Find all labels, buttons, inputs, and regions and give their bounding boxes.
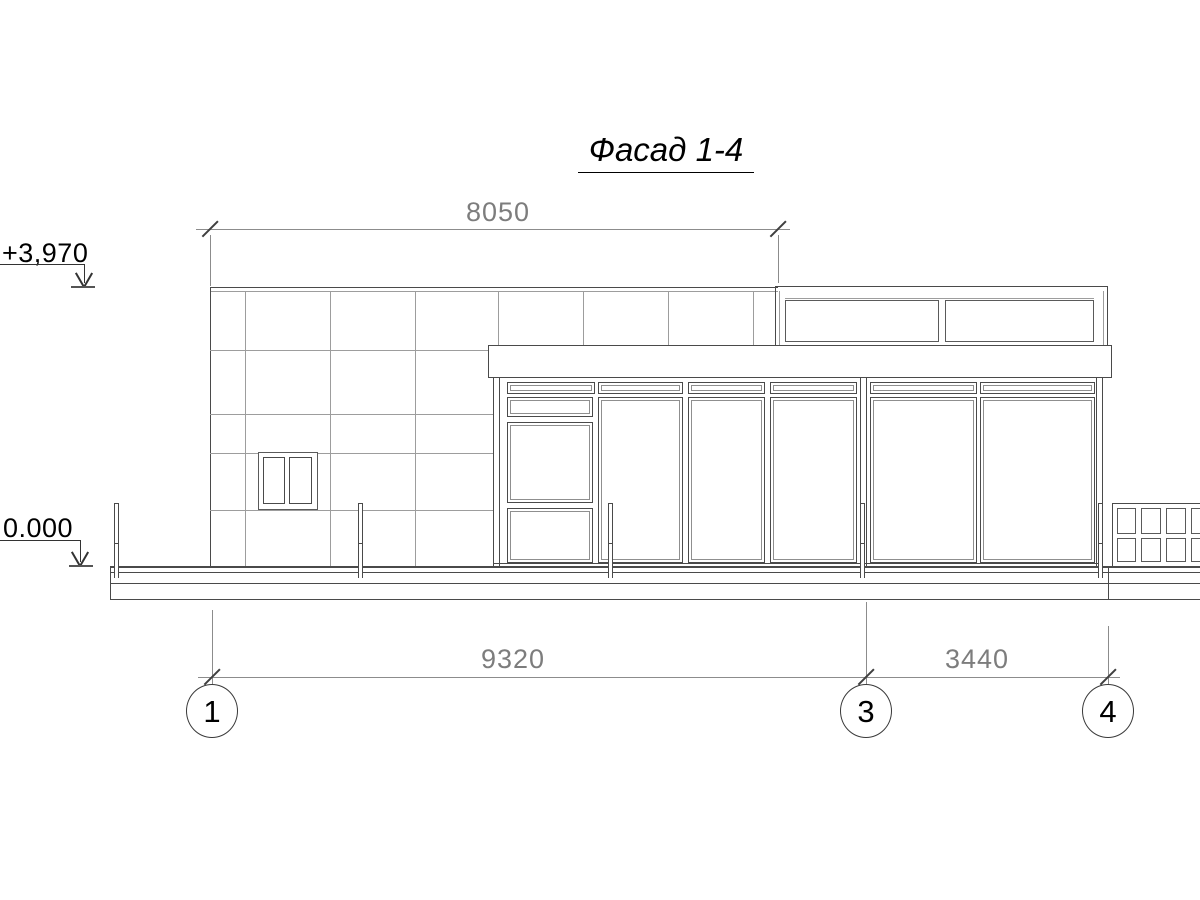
dimension-label-9320: 9320 (438, 644, 588, 675)
parapet-glass-panel (785, 300, 939, 342)
door-transom (507, 397, 593, 417)
glazing-glass (773, 400, 854, 560)
fence-grid (1112, 503, 1200, 566)
extension-line (778, 235, 779, 283)
slab-line (110, 572, 1200, 573)
post-joint (114, 543, 119, 544)
glazing-bay (980, 397, 1095, 563)
drawing-title: Фасад 1-4 (578, 131, 754, 173)
transom-pane (507, 382, 595, 394)
wall-left-edge (210, 287, 211, 566)
glazing-glass (873, 400, 974, 560)
railing-post (608, 503, 613, 578)
door-upper-panel (507, 422, 593, 503)
transom-glass (773, 385, 854, 391)
parapet-right-inner (1103, 291, 1104, 345)
storefront-left-jamb (493, 378, 500, 566)
fence-pane (1141, 508, 1161, 534)
transom-glass (691, 385, 762, 391)
window-sash (263, 457, 285, 504)
door-upper-glass (510, 425, 590, 500)
panel-joint-v (583, 291, 584, 345)
facade-drawing: Фасад 1-4 (0, 0, 1200, 900)
panel-joint-v (668, 291, 669, 345)
parapet-glass-panel (945, 300, 1094, 342)
panel-joint-h (210, 453, 493, 454)
transom-pane (980, 382, 1095, 394)
post-joint (608, 543, 613, 544)
glazing-bay (770, 397, 857, 563)
door-transom-glass (510, 400, 590, 414)
transom-glass (510, 385, 592, 391)
fence-pane (1191, 538, 1200, 562)
level-tick (71, 286, 95, 288)
axis-bubble-1: 1 (186, 684, 238, 738)
door-lower-glass (510, 511, 590, 560)
glazing-bay (870, 397, 977, 563)
fence-pane (1166, 508, 1186, 534)
panel-joint-v (498, 291, 499, 345)
glazing-glass (983, 400, 1092, 560)
elevation-leader-line (0, 264, 85, 265)
fence-pane (1191, 508, 1200, 534)
glazing-bay (688, 397, 765, 563)
elevation-arrow-shaft (80, 540, 81, 562)
fence-pane (1117, 538, 1136, 562)
railing-post (358, 503, 363, 578)
transom-glass (983, 385, 1092, 391)
panel-joint-v (415, 291, 416, 566)
elevation-leader-line (0, 540, 81, 541)
parapet-top-line (775, 286, 1108, 287)
parapet-rail-line (785, 298, 1094, 299)
parapet-right-edge (1107, 286, 1108, 345)
door-lower-panel (507, 508, 593, 563)
panel-joint-v (753, 291, 754, 345)
dimension-line-bottom (198, 677, 1120, 678)
wall-top-line (210, 287, 778, 288)
axis-bubble-3: 3 (840, 684, 892, 738)
transom-pane (870, 382, 977, 394)
panel-joint-h (210, 350, 488, 351)
slab-step-edge (1108, 566, 1109, 600)
transom-glass (873, 385, 974, 391)
railing-post (860, 503, 865, 578)
level-tick (69, 565, 93, 567)
dimension-label-3440: 3440 (902, 644, 1052, 675)
fence-pane (1117, 508, 1136, 534)
transom-glass (601, 385, 680, 391)
parapet-left-edge (775, 286, 776, 345)
transom-pane (598, 382, 683, 394)
fence-pane (1166, 538, 1186, 562)
axis-extension-line (866, 602, 867, 684)
window-frame (258, 452, 318, 510)
elevation-arrow-shaft (84, 264, 85, 283)
post-joint (1098, 543, 1103, 544)
panel-joint-h (210, 414, 493, 415)
post-joint (358, 543, 363, 544)
slab-top-line (110, 566, 1200, 568)
transom-pane (770, 382, 857, 394)
extension-line (210, 235, 211, 286)
storefront-sill-line (493, 563, 1103, 564)
panel-joint-v (330, 291, 331, 566)
dimension-label-top: 8050 (423, 197, 573, 228)
post-joint (860, 543, 865, 544)
railing-post (1098, 503, 1103, 578)
slab-left-edge (110, 566, 111, 600)
axis-bubble-4: 4 (1082, 684, 1134, 738)
window-sash (289, 457, 312, 504)
glazing-glass (691, 400, 762, 560)
panel-joint-v (245, 291, 246, 566)
parapet-left-inner (779, 291, 780, 345)
railing-post (114, 503, 119, 578)
slab-line (110, 583, 1200, 584)
fence-pane (1141, 538, 1161, 562)
wall-top-inner-line (210, 291, 778, 292)
transom-pane (688, 382, 765, 394)
dimension-line-top (196, 229, 790, 230)
slab-bottom-line (110, 599, 1200, 600)
panel-joint-h (210, 510, 493, 511)
fascia-band (488, 345, 1112, 378)
